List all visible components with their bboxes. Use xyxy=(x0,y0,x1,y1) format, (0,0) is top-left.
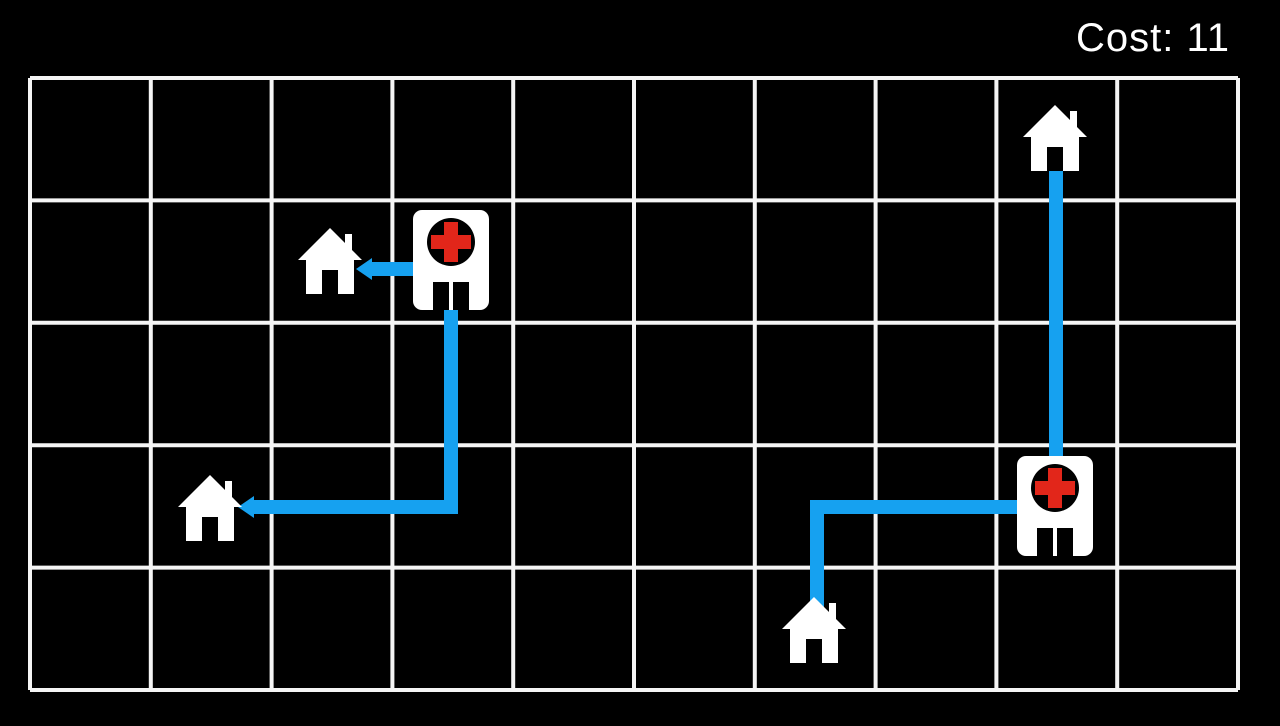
house-door xyxy=(202,517,218,541)
hospital-door xyxy=(433,282,449,310)
house-mid-left[interactable] xyxy=(298,228,362,294)
hospital-right[interactable] xyxy=(1017,456,1093,556)
house-lower-left[interactable] xyxy=(178,475,242,541)
route-line[interactable] xyxy=(817,507,1017,619)
route-line[interactable] xyxy=(254,306,451,507)
path-hospital-left-to-house-mid-left[interactable] xyxy=(356,258,413,280)
house-door xyxy=(1047,147,1063,171)
house-door xyxy=(322,270,338,294)
hospital-door xyxy=(1037,528,1053,556)
house-door xyxy=(806,639,822,663)
hospital-left[interactable] xyxy=(413,210,489,310)
house-bottom-mid[interactable] xyxy=(782,597,846,663)
hospital-door xyxy=(1057,528,1073,556)
path-house-bottom-mid-to-hospital-right[interactable] xyxy=(817,507,1017,619)
route-arrow-icon xyxy=(356,258,372,280)
game-screen: Cost: 11 xyxy=(0,0,1280,726)
game-board[interactable] xyxy=(0,0,1280,726)
house-top-right[interactable] xyxy=(1023,105,1087,171)
hospital-door xyxy=(453,282,469,310)
